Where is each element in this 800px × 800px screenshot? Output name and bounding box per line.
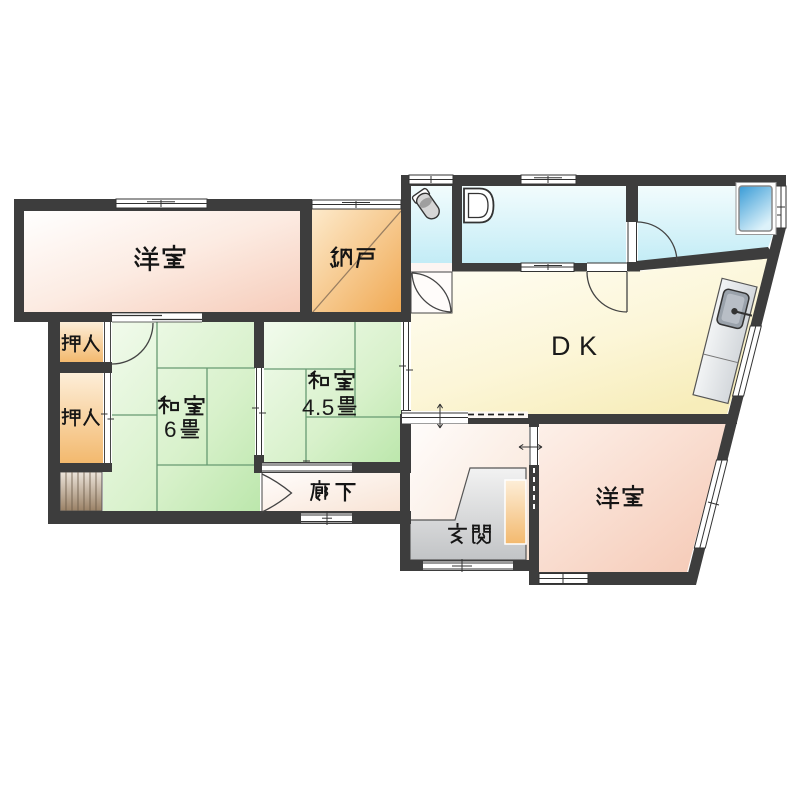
svg-text:6: 6 [164,417,177,442]
svg-text:4.5: 4.5 [302,395,335,420]
svg-text:DK: DK [551,331,606,361]
